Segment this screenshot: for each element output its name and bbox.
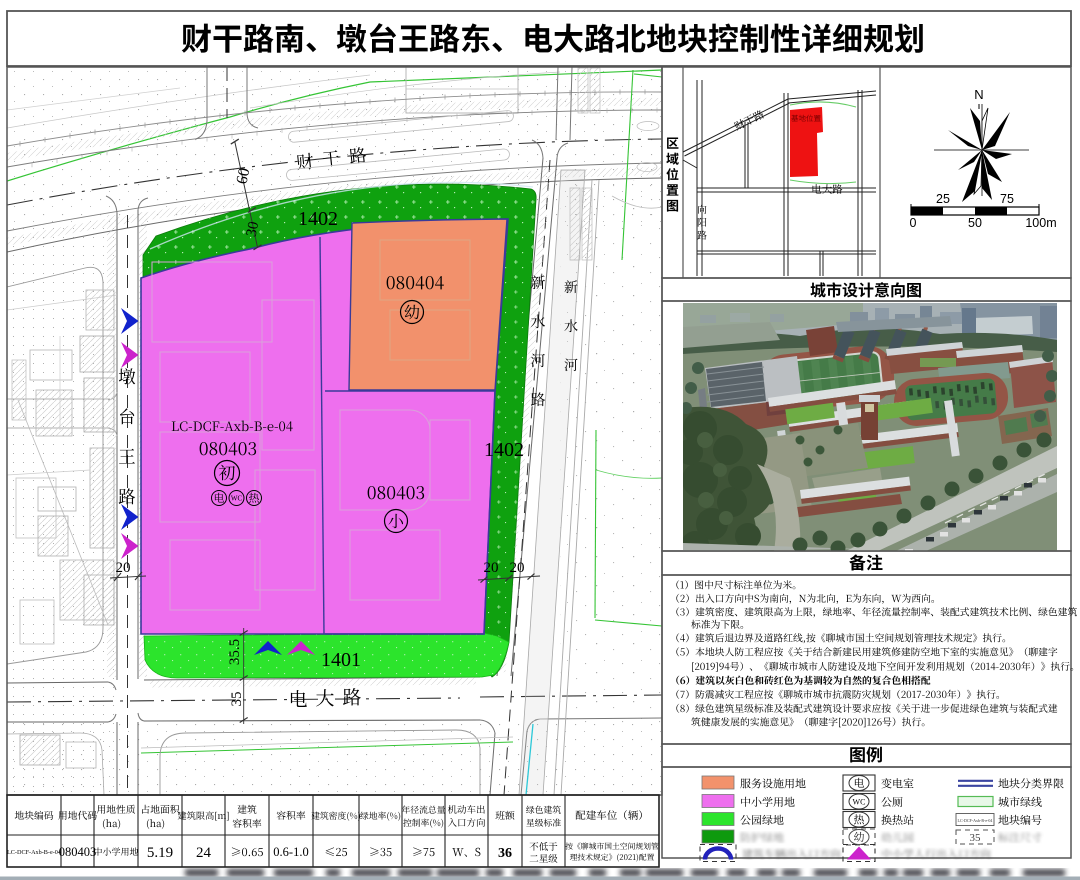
svg-text:20: 20 [510, 560, 525, 576]
svg-text:1401: 1401 [321, 649, 361, 671]
svg-text:20: 20 [484, 560, 499, 576]
svg-text:35: 35 [970, 832, 982, 844]
svg-text:N: N [974, 87, 983, 102]
svg-text:0: 0 [910, 216, 917, 230]
svg-text:100m: 100m [1025, 216, 1056, 230]
svg-text:20: 20 [116, 560, 131, 576]
svg-text:5.19: 5.19 [147, 845, 173, 861]
svg-text:75: 75 [1000, 192, 1014, 206]
svg-text:50: 50 [968, 216, 982, 230]
svg-text:25: 25 [936, 192, 950, 206]
svg-text:24: 24 [196, 845, 212, 861]
svg-text:36: 36 [498, 846, 512, 861]
svg-text:WC: WC [231, 495, 243, 503]
svg-text:0.6-1.0: 0.6-1.0 [273, 845, 308, 859]
svg-text:1402: 1402 [298, 208, 338, 230]
svg-text:LC-DCF-Axb-B-e-04: LC-DCF-Axb-B-e-04 [7, 849, 61, 856]
svg-text:080403: 080403 [59, 845, 97, 859]
svg-text:1402: 1402 [484, 439, 524, 461]
svg-text:WC: WC [853, 798, 866, 807]
svg-text:LC-DCF-Axb-B-e-04: LC-DCF-Axb-B-e-04 [958, 818, 993, 823]
svg-text:35.5: 35.5 [227, 639, 243, 665]
svg-text:35: 35 [229, 692, 245, 707]
